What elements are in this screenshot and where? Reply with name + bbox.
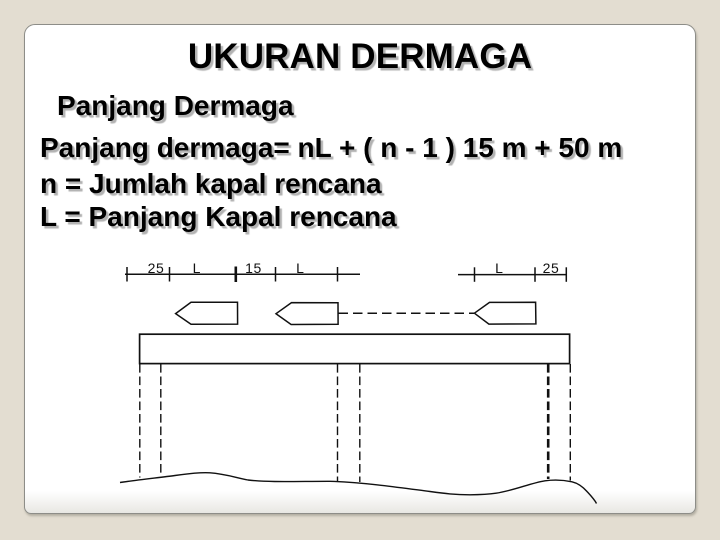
svg-text:15: 15 bbox=[245, 260, 262, 276]
svg-text:L: L bbox=[193, 260, 201, 276]
svg-text:25: 25 bbox=[148, 260, 165, 276]
svg-text:L: L bbox=[495, 260, 503, 276]
svg-text:25: 25 bbox=[543, 260, 560, 276]
svg-text:L: L bbox=[296, 260, 304, 276]
